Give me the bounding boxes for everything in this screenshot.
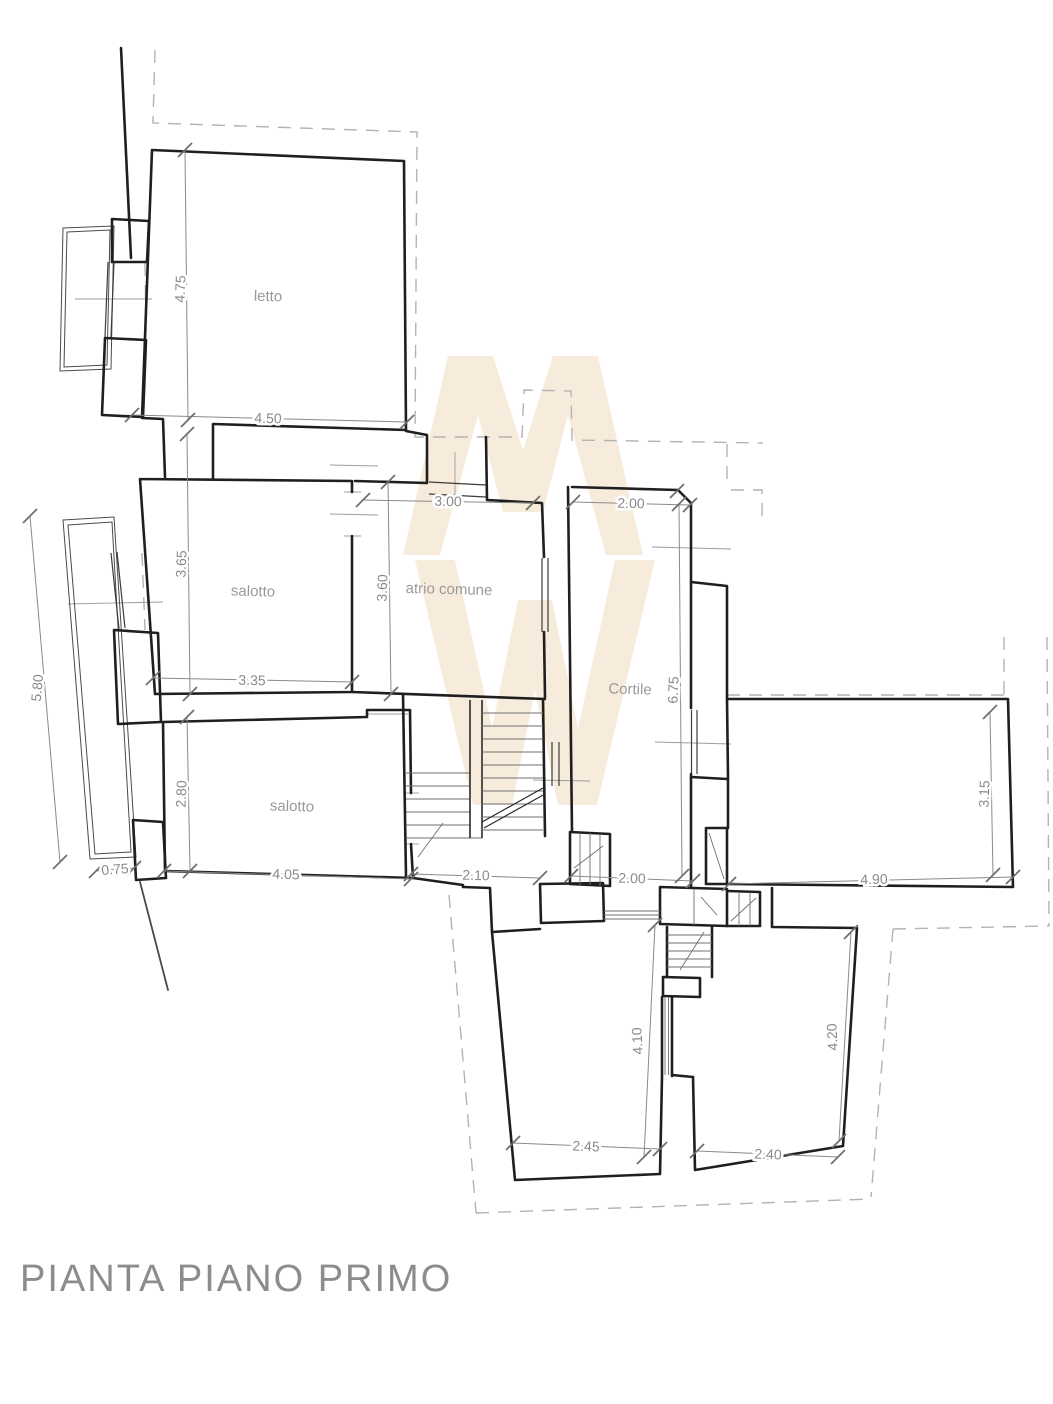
room-label-cortile: Cortile [608,680,652,698]
window-cortile [692,710,698,774]
dim-2-00-top: 2.00 [617,495,645,512]
walls [102,48,1013,1180]
dim-4-50: 4.50 [254,410,282,427]
room-label-salotto-lower: salotto [270,797,315,815]
room-label-letto: letto [254,288,283,306]
dim-4-20: 4.20 [823,1023,840,1051]
dim-2-40: 2.40 [754,1146,782,1163]
balcony-top-left [60,226,114,371]
dim-5-80: 5.80 [28,673,46,702]
dim-3-60: 3.60 [374,574,391,602]
dim-2-80: 2.80 [173,780,190,808]
room-label-salotto-upper: salotto [231,582,276,600]
floor-plan-drawing: 4.75 4.50 3.65 3.35 3.60 3.00 2.00 6.75 … [0,0,1053,1404]
dim-4-10: 4.10 [628,1027,645,1055]
dim-4-90: 4.90 [860,871,888,888]
balcony-railings [60,226,136,859]
balcony-mid-left-inner [68,522,131,854]
window-salotto [111,552,125,629]
boundary-dashed-lines [142,50,1049,1213]
dim-4-05: 4.05 [272,866,300,883]
dim-0-75: 0.75 [101,860,130,878]
dim-3-00: 3.00 [434,493,462,510]
dim-4-75: 4.75 [172,275,189,303]
dim-3-15: 3.15 [976,780,993,808]
room-label-atrio-comune: atrio comune [405,580,492,599]
page-title: PIANTA PIANO PRIMO [20,1258,452,1300]
dim-2-00-bottom: 2.00 [618,870,646,887]
watermark-letter-m [403,356,643,555]
dim-3-65: 3.65 [173,550,190,578]
dim-6-75: 6.75 [665,676,682,704]
balcony-mid-left [63,517,136,859]
dim-2-45: 2.45 [572,1138,600,1155]
balcony-top-left-inner [64,230,110,367]
dim-3-35: 3.35 [238,672,266,688]
floor-plan-page: 4.75 4.50 3.65 3.35 3.60 3.00 2.00 6.75 … [0,0,1053,1404]
dim-2-10: 2.10 [462,867,490,884]
